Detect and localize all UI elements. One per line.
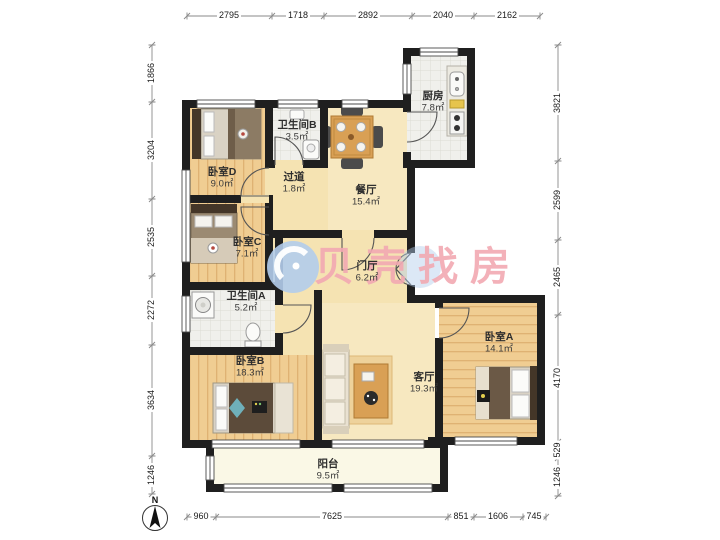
room-label-bathroom-a: 卫生间A — [226, 291, 265, 302]
dim-left-0: 1866 — [147, 61, 157, 85]
dim-top-1: 1718 — [286, 11, 310, 21]
bed-icon — [213, 383, 293, 433]
room-label-balcony: 阳台 — [318, 459, 339, 470]
room-label-kitchen: 厨房 — [423, 91, 444, 102]
dim-right-5: 1246 — [553, 465, 563, 489]
room-area-foyer: 6.2㎡ — [356, 273, 379, 283]
room-label-hallway: 过道 — [284, 172, 305, 183]
dim-bottom-0: 960 — [191, 512, 210, 522]
room-label-bedroom-b: 卧室B — [236, 356, 265, 367]
room-area-living: 19.3㎡ — [410, 384, 438, 394]
dim-top-4: 2162 — [495, 11, 519, 21]
kitchen-counter-icon — [447, 66, 467, 136]
room-area-dining: 15.4㎡ — [352, 197, 380, 207]
room-area-balcony: 9.5㎡ — [317, 471, 340, 481]
dim-top-2: 2892 — [356, 11, 380, 21]
dim-top-0: 2795 — [217, 11, 241, 21]
room-area-bedroom-a: 14.1㎡ — [485, 344, 513, 354]
dim-right-0: 3821 — [553, 91, 563, 115]
dim-bottom-3: 1606 — [486, 512, 510, 522]
washer-icon — [192, 292, 214, 318]
bed-icon — [192, 109, 261, 159]
north-label: N — [152, 495, 159, 505]
room-area-bedroom-b: 18.3㎡ — [236, 368, 264, 378]
room-label-bathroom-b: 卫生间B — [277, 120, 316, 131]
room-area-bathroom-b: 3.5㎡ — [286, 132, 309, 142]
dim-left-2: 2535 — [147, 225, 157, 249]
dim-right-1: 2599 — [553, 188, 563, 212]
dim-bottom-4: 745 — [524, 512, 543, 522]
room-label-bedroom-d: 卧室D — [208, 167, 237, 178]
dim-bottom-1: 7625 — [320, 512, 344, 522]
room-area-bedroom-c: 7.1㎡ — [236, 249, 259, 259]
room-label-bedroom-c: 卧室C — [233, 237, 262, 248]
watermark-text: 贝壳找房 — [314, 246, 522, 288]
dim-right-3: 4170 — [553, 366, 563, 390]
room-area-hallway: 1.8㎡ — [283, 184, 306, 194]
room-label-living: 客厅 — [414, 372, 435, 383]
dim-left-3: 2272 — [147, 298, 157, 322]
dim-top-3: 2040 — [431, 11, 455, 21]
room-area-bathroom-a: 5.2㎡ — [235, 303, 258, 313]
dim-left-1: 3204 — [147, 138, 157, 162]
room-label-dining: 餐厅 — [356, 185, 377, 196]
dim-left-5: 1246 — [147, 463, 157, 487]
dim-bottom-2: 851 — [451, 512, 470, 522]
bed-icon — [191, 204, 237, 263]
dim-right-4: 529 — [553, 440, 563, 459]
room-label-bedroom-a: 卧室A — [485, 332, 514, 343]
compass-icon — [143, 506, 168, 531]
toilet-icon — [245, 323, 261, 347]
sofa-icon — [323, 344, 392, 434]
dim-right-2: 2465 — [553, 265, 563, 289]
dim-left-4: 3634 — [147, 388, 157, 412]
room-label-foyer: 门厅 — [357, 261, 378, 272]
bed-icon — [476, 366, 537, 420]
room-area-bedroom-d: 9.0㎡ — [211, 179, 234, 189]
room-area-kitchen: 7.8㎡ — [422, 103, 445, 113]
floorplan-page: 厨房 7.8㎡ 卫生间B 3.5㎡ 过道 1.8㎡ 餐厅 15.4㎡ 卧室D 9… — [0, 0, 720, 540]
